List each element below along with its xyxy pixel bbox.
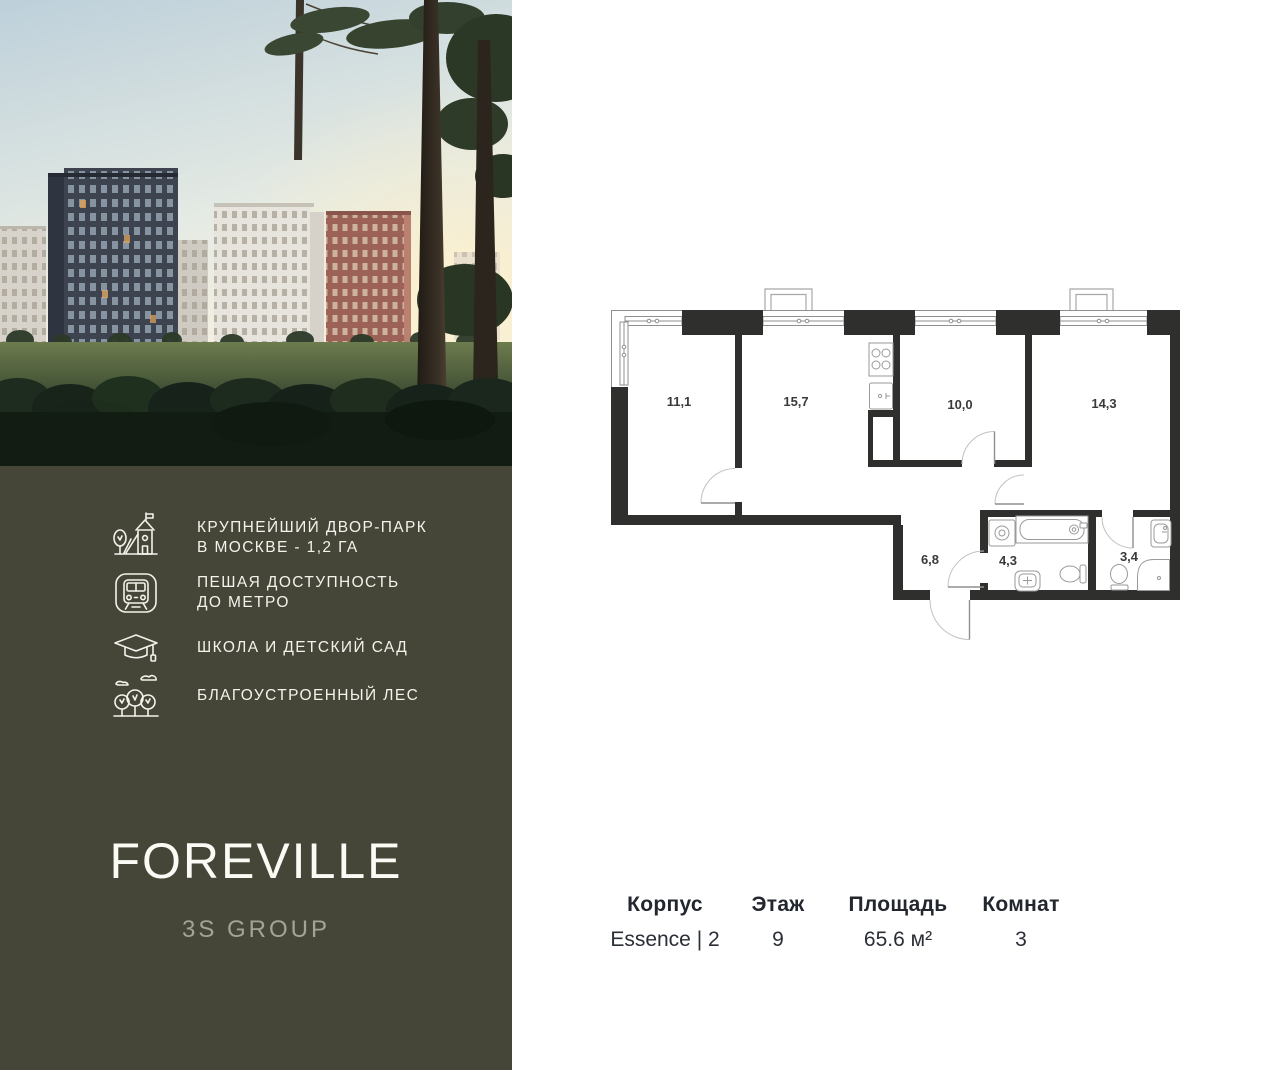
- feature-forest-label: БЛАГОУСТРОЕННЫЙ ЛЕС: [197, 686, 419, 706]
- buildings-photo: [0, 0, 512, 466]
- metro-icon: [110, 567, 162, 619]
- room-label-hallway: 6,8: [921, 552, 939, 567]
- detail-rooms: Комнат 3: [941, 893, 1101, 952]
- feature-forest: БЛАГОУСТРОЕННЫЙ ЛЕС: [110, 670, 419, 722]
- feature-metro-label: ПЕШАЯ ДОСТУПНОСТЬ ДО МЕТРО: [197, 573, 400, 613]
- room-label-1: 11,1: [667, 394, 692, 409]
- red-tower: [326, 211, 411, 344]
- kitchen-fixtures: [869, 343, 893, 409]
- feature-park: КРУПНЕЙШИЙ ДВОР-ПАРК В МОСКВЕ - 1,2 ГА: [110, 512, 427, 564]
- floor-plan: 11,1 15,7 10,0 14,3 6,8 4,3 3,4: [611, 283, 1181, 648]
- playground-icon: [110, 512, 162, 564]
- sidebar: КРУПНЕЙШИЙ ДВОР-ПАРК В МОСКВЕ - 1,2 ГА П…: [0, 0, 512, 1070]
- foreground-bushes: [0, 376, 512, 466]
- room-label-4: 14,3: [1091, 396, 1116, 411]
- developer-brand: 3S GROUP: [0, 916, 512, 944]
- feature-park-label: КРУПНЕЙШИЙ ДВОР-ПАРК В МОСКВЕ - 1,2 ГА: [197, 518, 427, 558]
- graduation-cap-icon: [110, 622, 162, 674]
- balconies: [765, 289, 1113, 310]
- kitchen-niche: [873, 417, 893, 460]
- building-mid-left: [178, 240, 208, 348]
- detail-rooms-value: 3: [941, 928, 1101, 952]
- room-label-wc: 3,4: [1120, 549, 1139, 564]
- dark-tower: [48, 168, 178, 348]
- project-logo: FOREVILLE: [0, 836, 512, 886]
- apartment-card: КРУПНЕЙШИЙ ДВОР-ПАРК В МОСКВЕ - 1,2 ГА П…: [0, 0, 1280, 1070]
- room-label-2: 15,7: [783, 394, 808, 409]
- room-label-3: 10,0: [947, 397, 972, 412]
- building-far-left: [0, 226, 46, 348]
- feature-school-label: ШКОЛА И ДЕТСКИЙ САД: [197, 638, 408, 658]
- walls: [611, 310, 1180, 600]
- forest-icon: [110, 670, 162, 722]
- room-label-bathroom: 4,3: [999, 553, 1017, 568]
- plan-panel: 11,1 15,7 10,0 14,3 6,8 4,3 3,4 Корпус E…: [512, 0, 1280, 1070]
- detail-rooms-label: Комнат: [941, 893, 1101, 917]
- entry-gap: [930, 590, 970, 600]
- feature-metro: ПЕШАЯ ДОСТУПНОСТЬ ДО МЕТРО: [110, 567, 400, 619]
- feature-school: ШКОЛА И ДЕТСКИЙ САД: [110, 622, 408, 674]
- white-tower: [214, 203, 324, 348]
